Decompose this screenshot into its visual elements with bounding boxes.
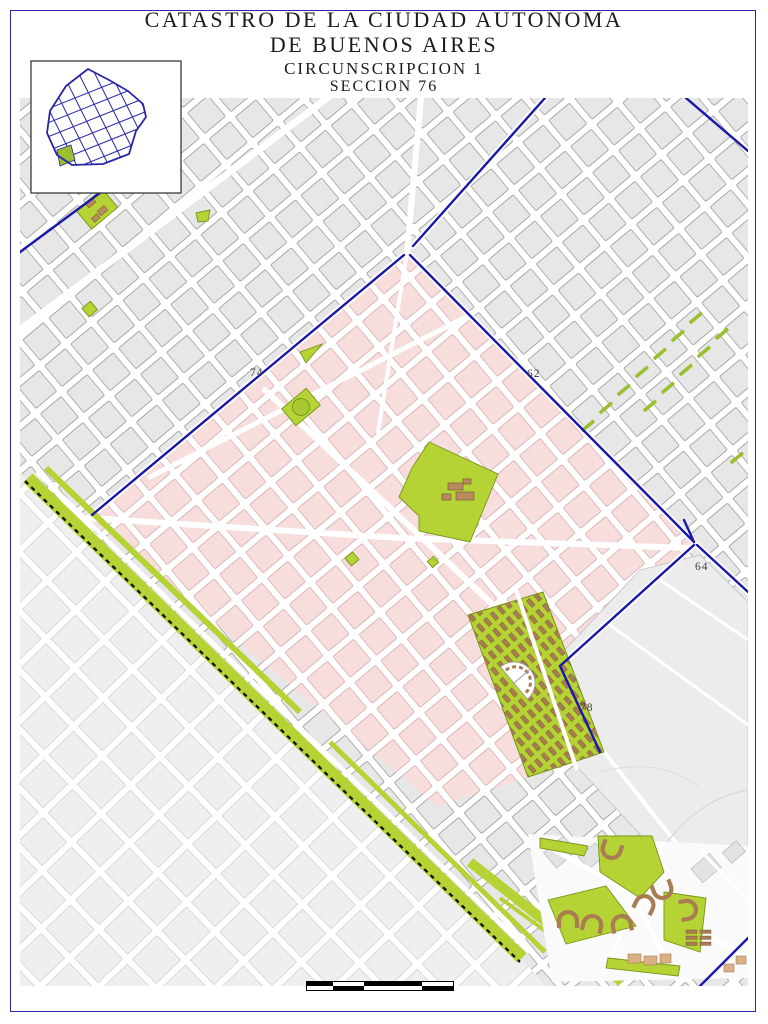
scale-bar — [306, 981, 454, 991]
scale-bar-segment — [364, 986, 422, 990]
scale-bar-segment — [307, 986, 333, 990]
cadastral-map-page: { "title": { "line1": "CATASTRO DE LA CI… — [0, 0, 768, 1024]
scale-bar-segment — [333, 986, 364, 990]
scale-bar-segment — [422, 986, 453, 990]
city-locator-inset[interactable] — [0, 0, 768, 1024]
